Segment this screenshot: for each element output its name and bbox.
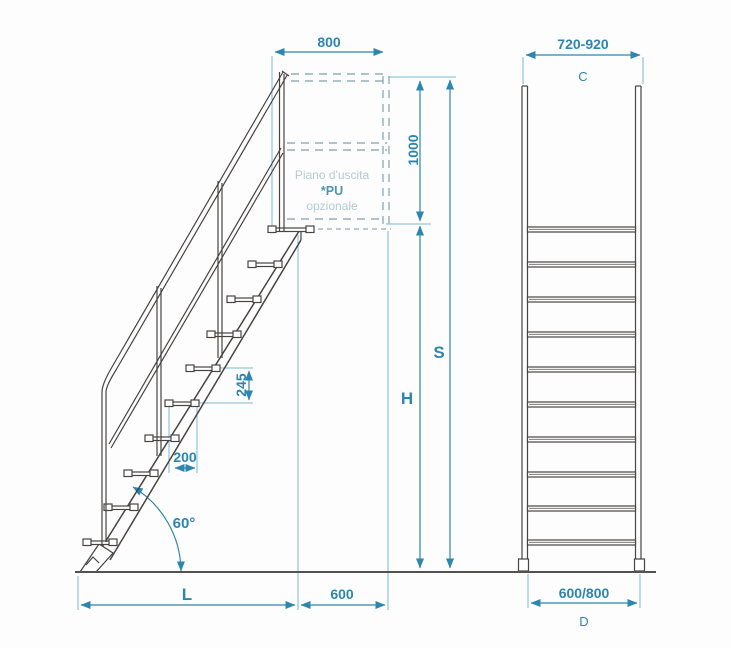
rung [528,540,636,545]
dim-label-200: 200 [173,449,197,465]
rung [528,227,636,232]
rung [528,297,636,302]
ladder-technical-drawing: 800 1000 245 200 60° L 600 S H 720-920 C… [0,0,731,648]
dim-label-1000: 1000 [405,134,421,165]
tread [207,331,241,338]
tread-landing [268,226,314,233]
stringer [99,228,301,560]
front-view [519,86,645,571]
tread [145,435,179,442]
tread [124,470,158,477]
dimension-lines [81,52,640,605]
tread [165,400,199,407]
tread [104,504,138,511]
rung [528,332,636,337]
rung [528,402,636,407]
rung [528,437,636,442]
dim-label-600: 600 [330,586,354,602]
side-view [80,71,314,572]
dim-label-S: S [433,343,444,362]
platform-note-line3: opzionale [306,199,358,213]
rung [528,506,636,511]
technical-drawing-page: 800 1000 245 200 60° L 600 S H 720-920 C… [0,0,731,648]
dim-label-720-920: 720-920 [557,36,609,52]
dim-label-C: C [578,69,587,84]
handrail-apex-cap [282,71,289,76]
platform-note-line1: Piano d'uscita [295,168,370,182]
front-right-foot [635,559,645,571]
front-left-foot [519,559,529,571]
dim-label-L: L [182,585,192,604]
stringer-top-edge [99,228,301,552]
front-rails [519,86,645,571]
tread [83,539,117,546]
tread [227,296,261,303]
angle-label-60: 60° [173,515,196,532]
dim-label-245: 245 [233,373,249,397]
platform-note: Piano d'uscita *PU opzionale [295,168,370,213]
dim-label-H: H [401,389,413,408]
tread [248,261,282,268]
front-rungs [528,227,636,545]
ladder-foot [80,544,113,572]
dim-label-600-800: 600/800 [559,585,610,601]
rung [528,472,636,477]
dim-label-D: D [579,614,588,629]
platform-note-line2: *PU [321,184,343,198]
dim-label-800: 800 [317,34,341,50]
rung [528,262,636,267]
tread [186,365,220,372]
rung [528,367,636,372]
